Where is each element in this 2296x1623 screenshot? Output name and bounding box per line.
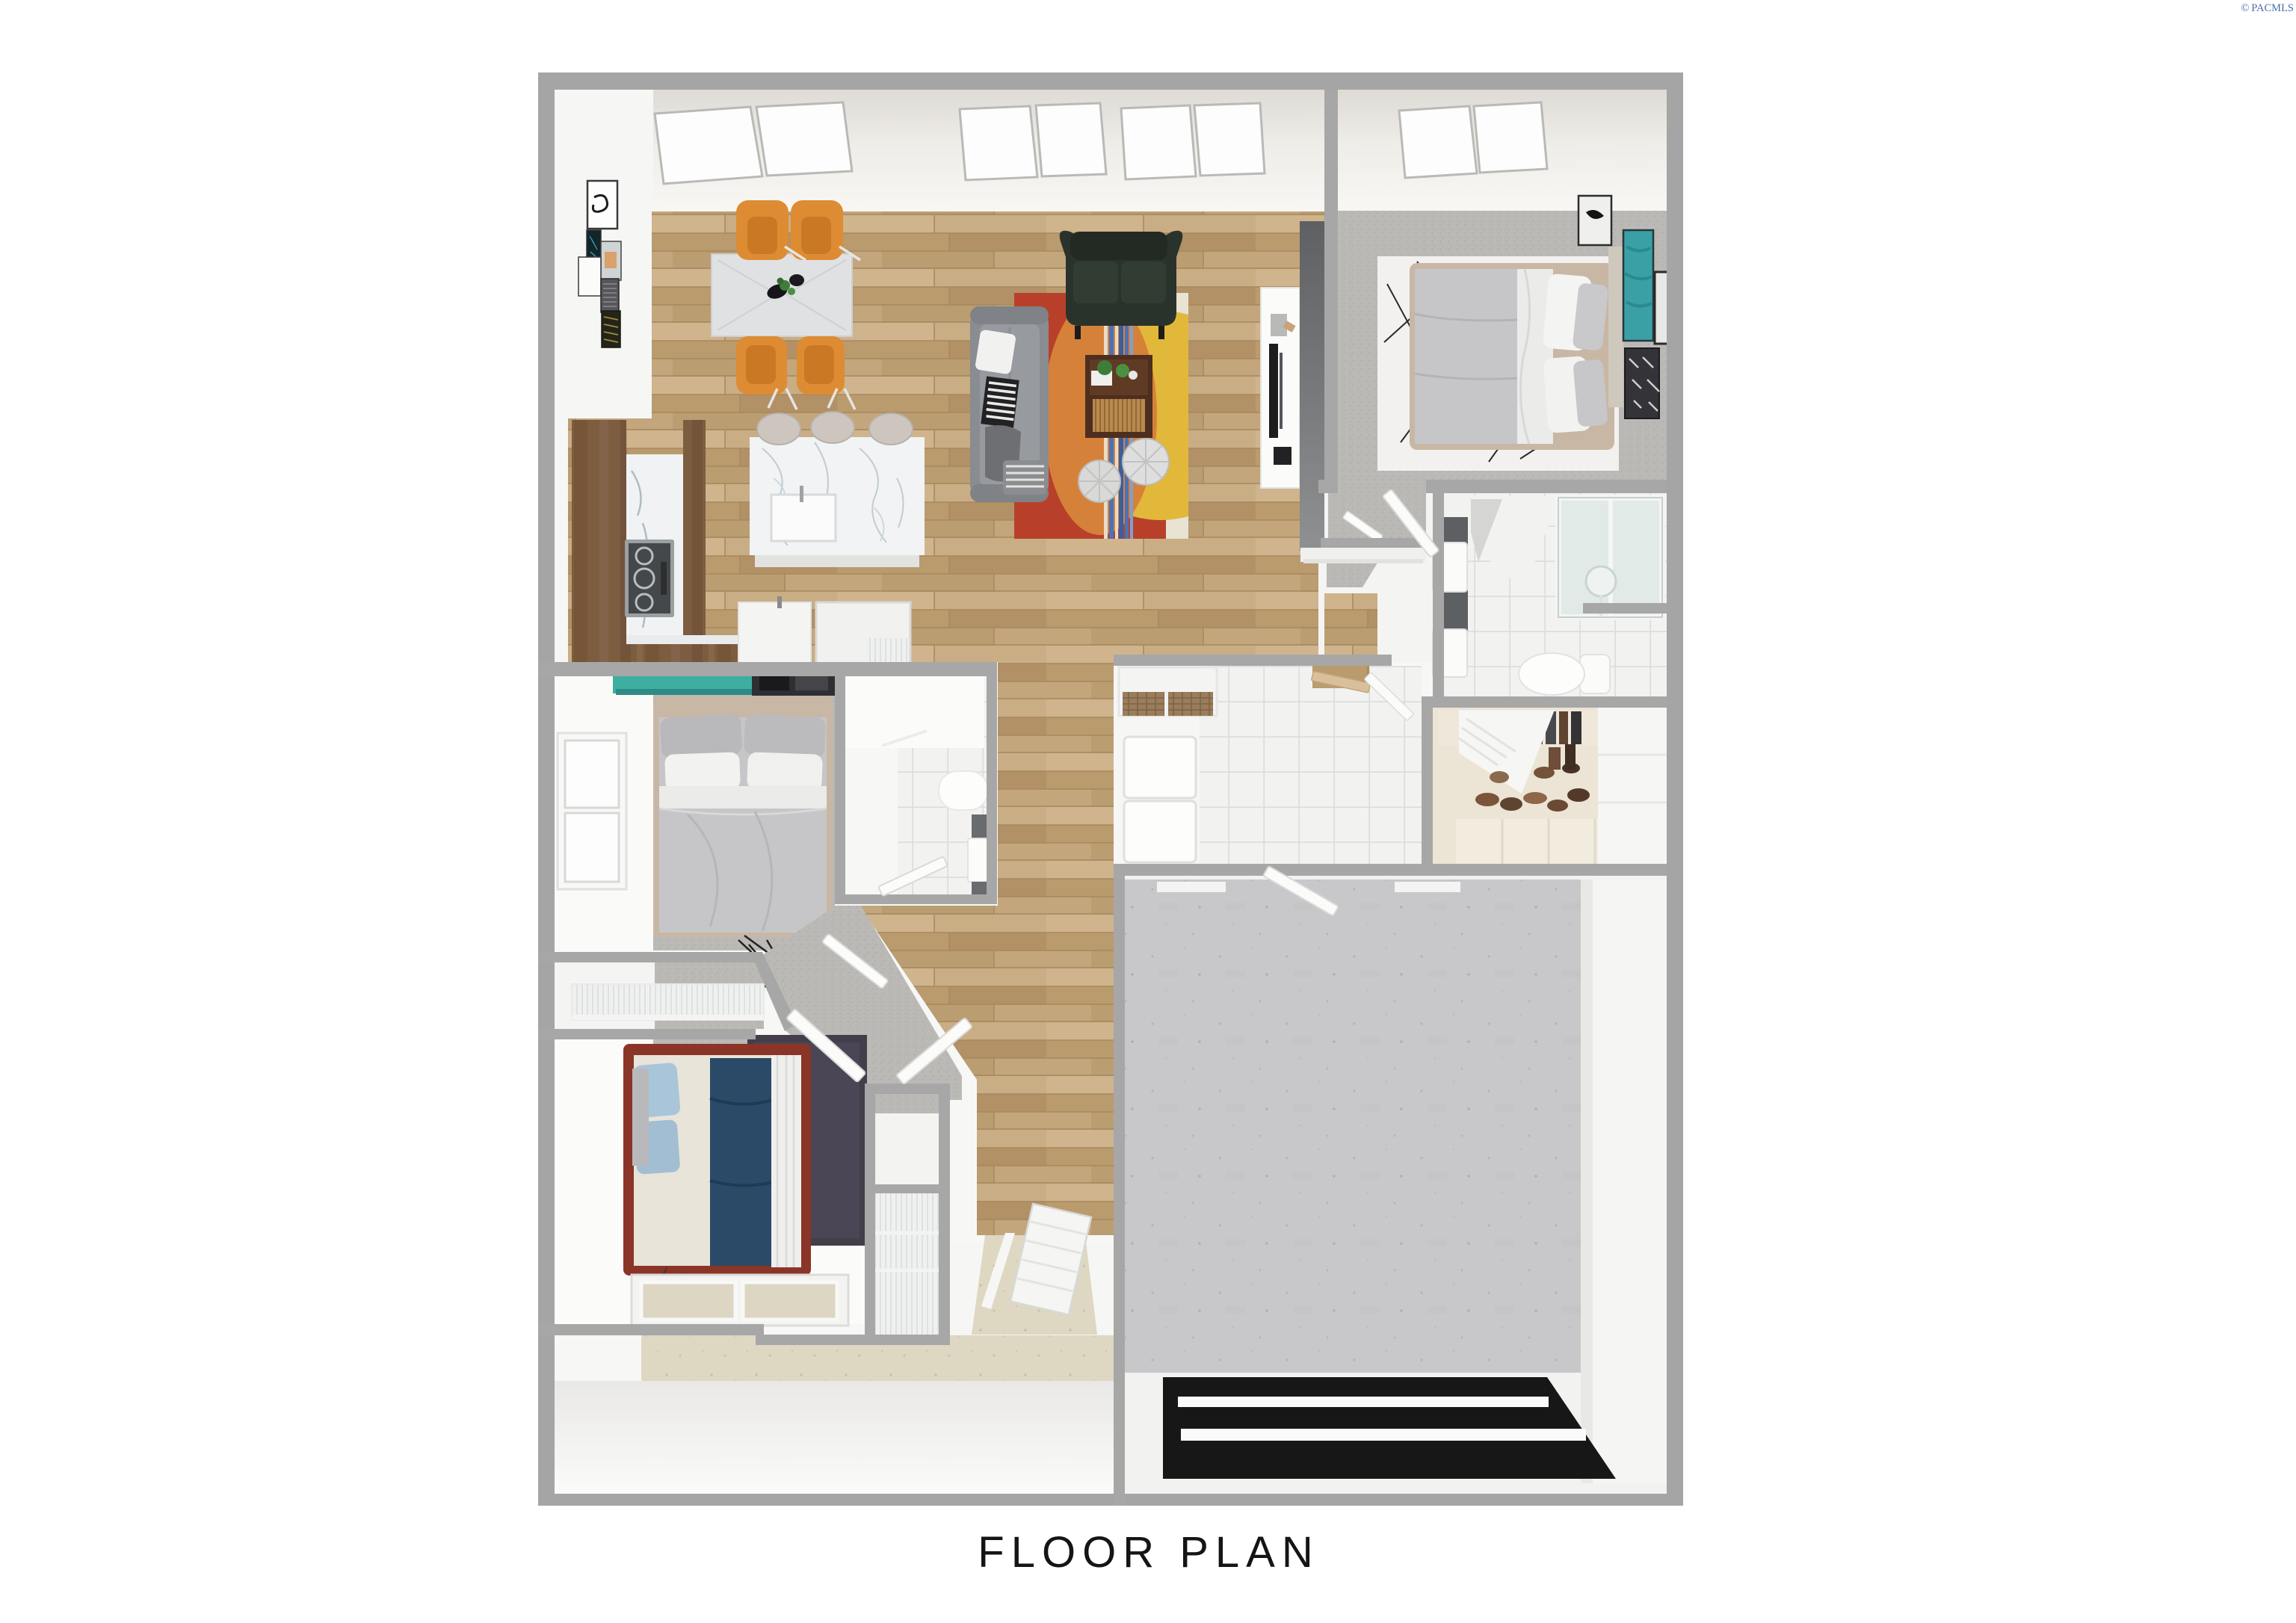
- svg-text:© PACMLS: © PACMLS: [2241, 2, 2294, 14]
- svg-text:FLOOR PLAN: FLOOR PLAN: [978, 1528, 1319, 1577]
